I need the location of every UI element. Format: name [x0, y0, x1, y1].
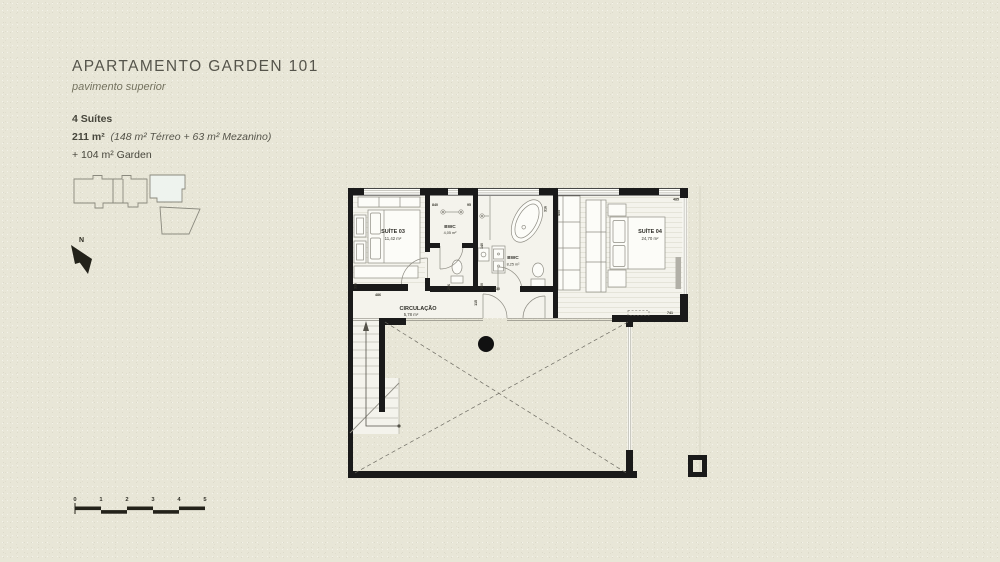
dim-200: 200 [480, 283, 484, 289]
key-plan [74, 175, 200, 234]
floor-plan: SUÍTE 03 11,42 m² BWC 4,05 m² BWC 8,25 m… [348, 186, 707, 480]
bench-console [354, 266, 418, 278]
dim-206: 206 [447, 284, 451, 290]
dim-95: 95 [467, 203, 471, 207]
key-plan-unit-highlight [150, 175, 185, 202]
dim-486: 486 [375, 293, 381, 297]
pillow [613, 221, 625, 243]
room-area-bwc04: 8,25 m² [507, 263, 521, 267]
stair-floor [352, 318, 399, 434]
dim-741: 741 [667, 311, 673, 315]
wardrobe [586, 200, 606, 292]
scale-3: 3 [151, 497, 155, 503]
room-label-suite04: SUÍTE 04 [638, 227, 663, 235]
pillow [613, 246, 625, 267]
scale-0: 0 [73, 497, 76, 503]
wardrobe [558, 196, 580, 290]
toilet [533, 263, 544, 277]
curtain [676, 257, 682, 289]
dim-115: 115 [474, 300, 478, 306]
scale-4: 4 [177, 497, 181, 503]
room-label-circulacao: CIRCULAÇÃO [400, 305, 438, 312]
room-label-bwc03: BWC [444, 224, 456, 230]
dim-140: 140 [480, 243, 484, 249]
toilet-tank [451, 276, 463, 283]
north-arrow-icon-tail [75, 256, 92, 274]
room-label-bwc04: BWC [507, 255, 519, 261]
room-area-bwc03: 4,05 m² [444, 231, 458, 235]
vanity [492, 246, 505, 273]
room-area-suite04: 24,70 m² [642, 236, 660, 241]
north-label: N [79, 237, 84, 244]
pillow [371, 238, 381, 259]
dim-840: 840 [432, 203, 438, 207]
stair-wall [379, 320, 385, 412]
toilet-tank [531, 279, 545, 287]
room-label-suite03: SUÍTE 03 [381, 227, 405, 235]
wardrobe [358, 197, 420, 207]
drawing-sheet: APARTAMENTO GARDEN 101 pavimento superio… [0, 0, 1000, 562]
scale-5: 5 [203, 497, 207, 503]
north-arrow: N [71, 237, 92, 274]
key-plan-block-middle [113, 176, 147, 208]
column-dot [478, 336, 494, 352]
room-area-circulacao: 5,78 m² [404, 312, 419, 317]
dim-336: 336 [354, 283, 358, 289]
toilet [452, 260, 462, 274]
key-plan-block-left [74, 176, 113, 209]
room-area-suite03: 11,42 m² [385, 236, 402, 241]
pillow [371, 213, 381, 234]
plan-canvas: N [0, 0, 1000, 562]
dim-316: 316 [544, 206, 548, 212]
scale-bar: 0 1 2 3 4 5 [73, 497, 207, 514]
column-hook [688, 455, 707, 477]
scale-1: 1 [99, 497, 103, 503]
nightstand [608, 270, 626, 287]
scale-2: 2 [125, 497, 128, 503]
nightstand [608, 204, 626, 216]
dim-485: 485 [673, 198, 679, 202]
dim-455: 455 [557, 210, 561, 216]
dim-230: 230 [494, 287, 500, 291]
key-plan-garden [160, 207, 200, 234]
